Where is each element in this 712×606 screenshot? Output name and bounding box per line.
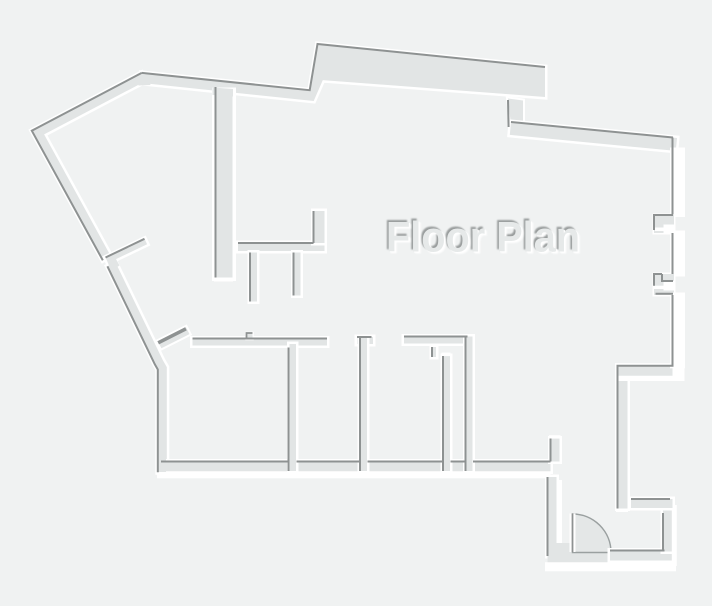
svg-text:Floor Plan: Floor Plan [386, 214, 580, 261]
